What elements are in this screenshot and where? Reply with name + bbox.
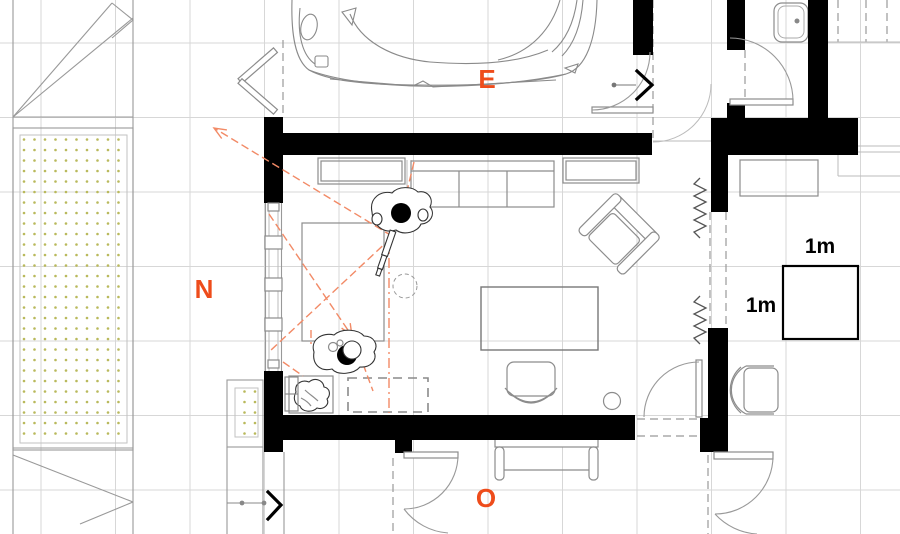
person-sitting [313, 330, 376, 373]
pillar-bottom-mid [395, 432, 412, 453]
wall-right-lower [708, 328, 728, 420]
head [391, 203, 411, 223]
wall-right-bottom-block [700, 418, 728, 452]
radiator-lower [694, 296, 706, 344]
camera-tool [375, 230, 396, 276]
compass-labels: E N O [195, 64, 497, 513]
door-hall-swing [653, 84, 711, 142]
cabinet [563, 158, 639, 183]
chair [505, 362, 557, 403]
pillar-hall-top [727, 0, 745, 50]
compass-label-north: N [195, 274, 214, 304]
radiators [694, 178, 706, 344]
floor-plan-canvas: 1m 1m E N O [0, 0, 900, 534]
bathtub [774, 3, 808, 42]
gate-chevron-bottom [80, 502, 133, 524]
wall-right-column [808, 0, 828, 118]
wall-top-right [711, 118, 858, 155]
survey-marker [227, 492, 281, 519]
sideboard [318, 158, 405, 184]
windshield-line [498, 0, 560, 60]
entrance-arrow-bottom [268, 492, 281, 519]
door-garage-hall [592, 52, 653, 113]
door-bottom-right [714, 452, 773, 534]
projection-dashed-rect [348, 378, 428, 412]
scale-square [783, 266, 858, 339]
scale-indicator: 1m 1m [746, 235, 858, 339]
stool-circle [604, 393, 621, 410]
garden-bed-gravel [20, 135, 127, 443]
wall-bottom [283, 415, 635, 440]
sofa [411, 161, 554, 207]
compass-label-east: E [478, 64, 495, 94]
wall-fixture [285, 377, 298, 411]
wall-hall-column [711, 155, 728, 212]
doors [238, 38, 793, 534]
hall-armchair [730, 366, 778, 414]
furniture [285, 3, 818, 480]
bench [495, 439, 598, 480]
garage-gate [238, 48, 277, 114]
headlight [298, 13, 319, 42]
door-living-hall [644, 360, 702, 417]
door-bottom-centre [404, 452, 458, 533]
sight-arrowhead-nw [214, 128, 227, 139]
wall-left-bottom [264, 371, 283, 452]
compass-label-west: O [476, 483, 496, 513]
door-handle [565, 64, 578, 73]
radiator-upper [694, 178, 706, 238]
floor-plan-drawing: 1m 1m E N O [0, 0, 900, 534]
pillar-garage [633, 0, 653, 55]
armchair [577, 192, 660, 275]
scale-label-top: 1m [805, 235, 835, 258]
person-standing [372, 188, 433, 277]
wall-top [283, 133, 652, 155]
desk [740, 160, 818, 196]
scale-label-left: 1m [746, 294, 776, 317]
